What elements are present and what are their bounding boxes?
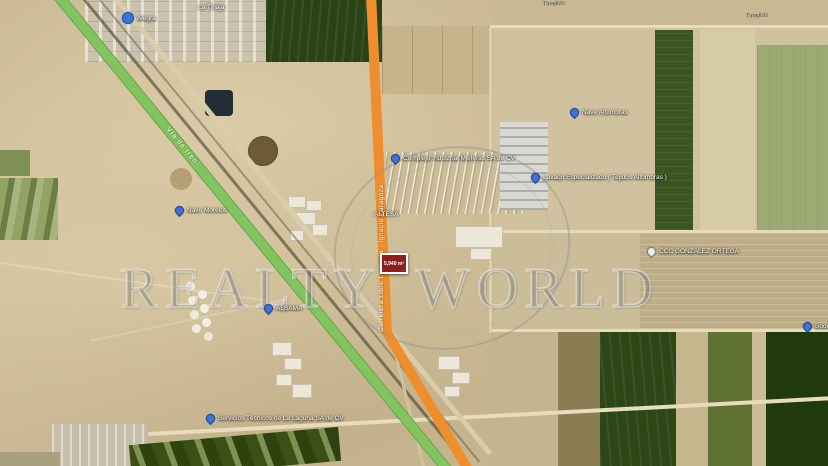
- field-pale: [700, 30, 755, 230]
- field-lightgreen: [757, 45, 828, 232]
- field-strip: [676, 332, 708, 466]
- building: [272, 342, 292, 356]
- bottom-corner: [0, 452, 60, 466]
- building: [452, 372, 470, 384]
- building: [292, 384, 312, 398]
- area-size-marker[interactable]: 5,940 m²: [380, 253, 408, 274]
- field-olive: [708, 332, 752, 466]
- building: [276, 374, 292, 386]
- field-strip: [558, 332, 602, 466]
- farm-row-top: [494, 0, 828, 26]
- building: [470, 248, 492, 260]
- building: [312, 224, 328, 236]
- field-green-top: [266, 0, 382, 62]
- field-left-strips: [0, 178, 58, 240]
- field-tilled: [640, 234, 828, 329]
- field-left-olive: [0, 150, 30, 176]
- field-darkgreen-1: [655, 30, 693, 230]
- satellite-map-canvas[interactable]: Vía de tren Carretera Libre La Noria - I…: [0, 0, 828, 466]
- field-darkgreen-2: [600, 332, 676, 466]
- building: [306, 200, 322, 211]
- building: [444, 386, 460, 397]
- storage-tanks: [186, 282, 195, 291]
- building: [284, 358, 302, 370]
- area-size-label: 5,940 m²: [384, 261, 404, 267]
- building: [438, 356, 460, 370]
- building: [455, 226, 503, 248]
- field-tan-top: [382, 26, 490, 94]
- field-strip: [490, 332, 560, 466]
- warehouse-building: [500, 122, 548, 210]
- circular-plot: [170, 168, 192, 190]
